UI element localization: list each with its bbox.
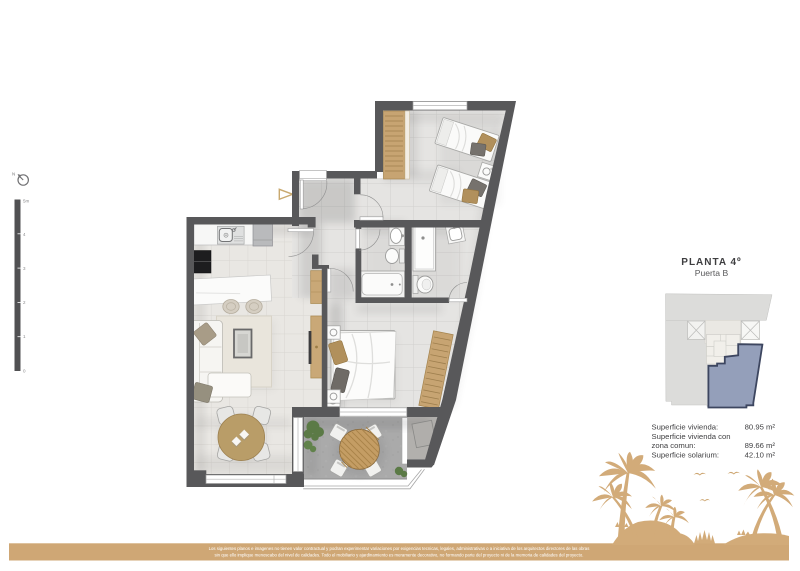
svg-text:zona comun:: zona comun: — [652, 441, 696, 450]
svg-text:5m: 5m — [23, 199, 30, 204]
svg-text:Superficie solarium:: Superficie solarium: — [652, 451, 720, 460]
svg-text:89.66 m²: 89.66 m² — [745, 441, 776, 450]
svg-text:sin que ello implique menoscab: sin que ello implique menoscabo del nive… — [215, 553, 584, 558]
svg-text:Los siguientes planos e imagen: Los siguientes planos e imagenes no tien… — [209, 546, 590, 551]
svg-text:Superficie vivienda:: Superficie vivienda: — [652, 422, 719, 431]
svg-text:42.10 m²: 42.10 m² — [745, 451, 776, 460]
svg-text:Superficie vivienda con: Superficie vivienda con — [652, 432, 731, 441]
svg-text:Puerta B: Puerta B — [695, 268, 729, 278]
svg-text:PLANTA 4º: PLANTA 4º — [681, 257, 741, 268]
svg-text:80.95 m²: 80.95 m² — [745, 422, 776, 431]
svg-text:N: N — [12, 172, 15, 177]
